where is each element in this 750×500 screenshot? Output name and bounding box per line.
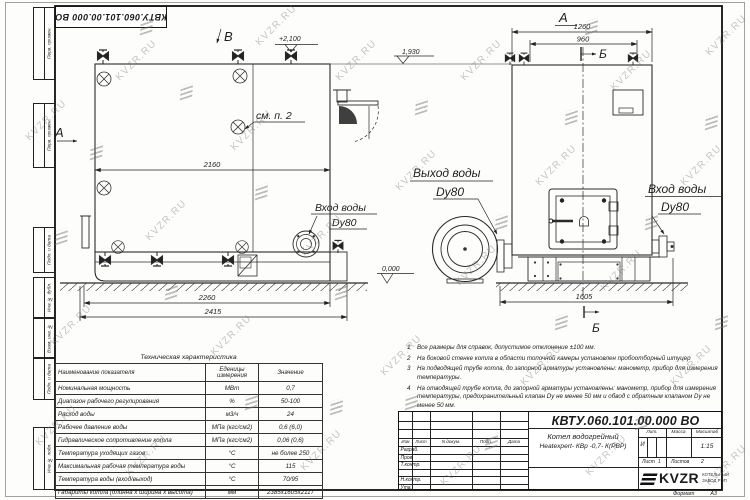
note-text: На боковой стенке котла в области топочн… [417,355,723,364]
table-row: Температура уходящих газов°Сне более 250 [56,447,323,460]
table-row: Габариты котла (длинна х ширина х высота… [56,486,323,499]
param-value: 2385х1605х2117 [259,486,323,499]
margin-label: Инв. № дубл. [44,278,56,317]
note-number: 4 [407,385,417,411]
dim-front-inner: 960 [577,35,590,44]
inlet-flange-front [652,236,674,257]
note-text: Все размеры для справок, допустимое откл… [417,344,723,353]
note-text: На отводящей трубе котла, до запорной ар… [417,385,723,411]
valve-icon [98,50,109,64]
valve-icon [628,53,637,65]
kvzr-logo-mark-icon [640,472,658,485]
inlet-callout-side: Вход воды Dy80 [309,202,377,234]
kvzr-logo: KVZR КОТЕЛЬНЫЙ ЗАВОД РЭП [642,470,729,486]
param-name: Максимальная рабочая температура воды [56,460,206,473]
tech-table: Наименование показателя Еденицы измерени… [55,363,323,499]
param-name: Температура уходящих газов [56,447,206,460]
scale-value: 1:15 [691,443,723,450]
format-word: Формат [673,491,694,497]
margin-box-inv-dubl: Инв. № дубл. [33,277,55,318]
table-row: Гидравлическое сопротивление котлаМПа (к… [56,434,323,447]
tech-characteristics: Техническая характеристика Наименование … [55,352,322,499]
inlet-callout-front: Вход воды Dy80 [645,182,721,234]
kvzr-logo-text: KVZR [659,470,699,486]
valve-icon [505,53,514,65]
side-view-dimensions: 2160 2260 2415 +2,100 1,930 0,000 см. п.… [54,29,434,321]
lifting-eye-icon [97,72,111,86]
lifting-eye-icon [231,120,245,134]
section-b-label: Б [599,47,607,61]
row-nkontr: Н.контр. [401,477,422,483]
col-podp: Подп. [472,439,500,444]
tech-table-header: Наименование показателя Еденицы измерени… [56,364,323,382]
margin-label: Перв. примен. [44,8,56,79]
param-name: Температура воды (вход/выход) [56,473,206,486]
col-list: Лист [412,439,430,444]
margin-label: Перв. примен. [44,104,56,167]
table-row: Рабочее давление водыМПа (кгс/см2)0,6 (6… [56,421,323,434]
blower-fan [433,217,513,284]
table-row: Максимальная рабочая температура воды°С1… [56,460,323,473]
lifting-eye-icon [236,241,249,254]
param-name: Номинальная мощность [56,382,206,395]
row-razrab: Разраб. [401,447,419,453]
note-number: 1 [407,344,417,353]
note-item: 4На отводящей трубе котла, до запорной а… [407,385,723,411]
param-value: 24 [259,408,323,421]
param-units: % [206,395,259,408]
product-model: Heatexpert- КВр -0,7- К(РВР) [526,443,640,450]
param-name: Габариты котла (длинна х ширина х высота… [56,486,206,499]
valve-icon [100,252,111,266]
ash-box [238,255,257,276]
ground-hatch [60,283,368,291]
doc-number: КВТУ.060.101.00.000 ВО [530,414,721,428]
param-units: °С [206,447,259,460]
title-block: КВТУ.060.101.00.000 ВО Изм Лист N докум.… [398,411,722,490]
margin-box-podp-data: Подп. и дата [33,227,55,273]
lifting-eye-icon [97,181,111,195]
elevation-mark-zero: 0,000 [377,266,414,283]
margin-box-vzam-inv: Взам. инв. № [33,318,55,358]
note-item: 2На боковой стенке котла в области топоч… [407,355,723,364]
furnace-door [549,189,618,249]
col-value: Значение [259,364,323,382]
view-mark-b: В [224,29,233,44]
margin-label: Подп. и дата [44,228,56,272]
param-value: 0,06 (0,6) [259,434,323,447]
control-box [613,90,643,115]
margin-box-inv-podl: Инв. № подл. [33,427,55,490]
param-value: 50-100 [259,395,323,408]
inlet-label: Вход воды [648,182,706,196]
sheets-label: Листов [671,459,689,465]
table-row: Температура воды (вход/выход)°С70/95 [56,473,323,486]
lifting-eye-icon [233,69,247,83]
row-utv: Утв. [401,485,412,491]
param-units: °С [206,473,259,486]
col-units: Еденицы измерения [206,364,259,382]
ground-hatch [496,283,688,291]
note-text: На подводящей трубе котла, до запорной а… [417,365,723,382]
drawing-notes: 1Все размеры для справок, допустимое отк… [407,344,723,413]
water-inlet-flange [293,231,319,257]
elevation-mid-label: 1,930 [402,49,420,56]
param-units: мм [206,486,259,499]
table-row: Диапазон рабочего регулирования%50-100 [56,395,323,408]
company-line2: ЗАВОД РЭП [702,478,729,484]
outlet-label: Выход воды [413,166,481,180]
param-units: м3/ч [206,408,259,421]
valve-icon [233,50,244,64]
section-mark-top: Б [581,47,607,61]
elevation-zero-label: 0,000 [382,266,400,273]
dim-front-top: 1260 [574,22,592,31]
tech-table-title: Техническая характеристика [55,352,322,363]
note-number: 2 [407,355,417,364]
valve-icon [333,240,343,253]
param-value: 70/95 [259,473,323,486]
col-name: Наименование показателя [56,364,206,382]
outlet-callout: Выход воды Dy80 [410,166,497,234]
elevation-top-label: +2,100 [279,36,301,43]
mass-header: Масса [666,430,691,435]
param-value: 0,6 (6,0) [259,421,323,434]
elevation-mark-top: +2,100 [275,36,318,52]
valve-icon [223,252,234,266]
param-units: МПа (кгс/см2) [206,421,259,434]
elevation-mark-mid: 1,930 [394,49,434,64]
margin-box-perv-primen: Перв. примен. [33,7,55,80]
param-units: °С [206,460,259,473]
lifting-eye-icon [112,241,125,254]
product-name: Котел водогрейный [528,432,638,441]
flue-outlet [333,90,378,142]
section-mark-bottom: Б [584,306,600,335]
note-item: 1Все размеры для справок, допустимое отк… [407,344,723,353]
col-izm: Изм [399,439,412,444]
rear-pipe-stub [80,216,91,248]
margin-box-podp-data2: Подп. и дата [33,358,55,400]
valve-icon [519,53,528,65]
drawing-sheet: 2160 2260 2415 +2,100 1,930 0,000 см. п.… [0,0,750,500]
inlet-dy-label: Dy80 [661,200,689,214]
sheet-label: Лист [642,459,655,465]
doc-number-box: КВТУ.060.101.00.000 ВО [55,6,167,28]
note-number: 3 [407,365,417,382]
param-units: МПа (кгс/см2) [206,434,259,447]
inlet-label: Вход воды [315,202,366,214]
param-name: Гидравлическое сопротивление котла [56,434,206,447]
front-view-title: А [558,10,568,25]
lit-header: Лит. [638,430,666,435]
peephole-icon [580,217,589,227]
param-value: 0,7 [259,382,323,395]
see-note-callout: см. п. 2 [245,110,305,129]
company-name: КОТЕЛЬНЫЙ ЗАВОД РЭП [702,472,729,483]
lit-value: И [638,442,647,448]
table-row: Номинальная мощностьМВт0,7 [56,382,323,395]
inlet-dy-label: Dy80 [332,217,357,229]
doc-number-rotated: КВТУ.060.101.00.000 ВО [55,12,167,22]
dim-front-width: 1605 [576,292,594,301]
param-name: Расход воды [56,408,206,421]
param-name: Рабочее давление воды [56,421,206,434]
format-value: А3 [710,491,717,497]
valve-icon [152,252,163,266]
outlet-dy-label: Dy80 [436,185,464,199]
section-b-label: Б [592,321,600,335]
col-doc: N докум. [430,439,472,444]
format-label: Формат А3 [640,491,750,497]
sheet-value: 1 [658,459,661,465]
param-value: 115 [259,460,323,473]
row-prov: Пров. [401,455,414,461]
dim-overall-length: 2415 [204,307,223,316]
col-data: Дата [500,439,528,444]
support-base [518,257,660,281]
sheets-value: 2 [701,459,704,465]
param-value: не более 250 [259,447,323,460]
note-item: 3На подводящей трубе котла, до запорной … [407,365,723,382]
dim-base-length: 2260 [198,293,217,302]
row-tkontr: Т.контр. [401,462,421,468]
dim-body-length: 2160 [203,160,222,169]
scale-header: Масштаб [691,430,723,435]
margin-box-sprav: Перв. примен. [33,103,55,168]
see-note-label: см. п. 2 [256,110,292,122]
table-row: Расход водым3/ч24 [56,408,323,421]
param-name: Диапазон рабочего регулирования [56,395,206,408]
param-units: МВт [206,382,259,395]
